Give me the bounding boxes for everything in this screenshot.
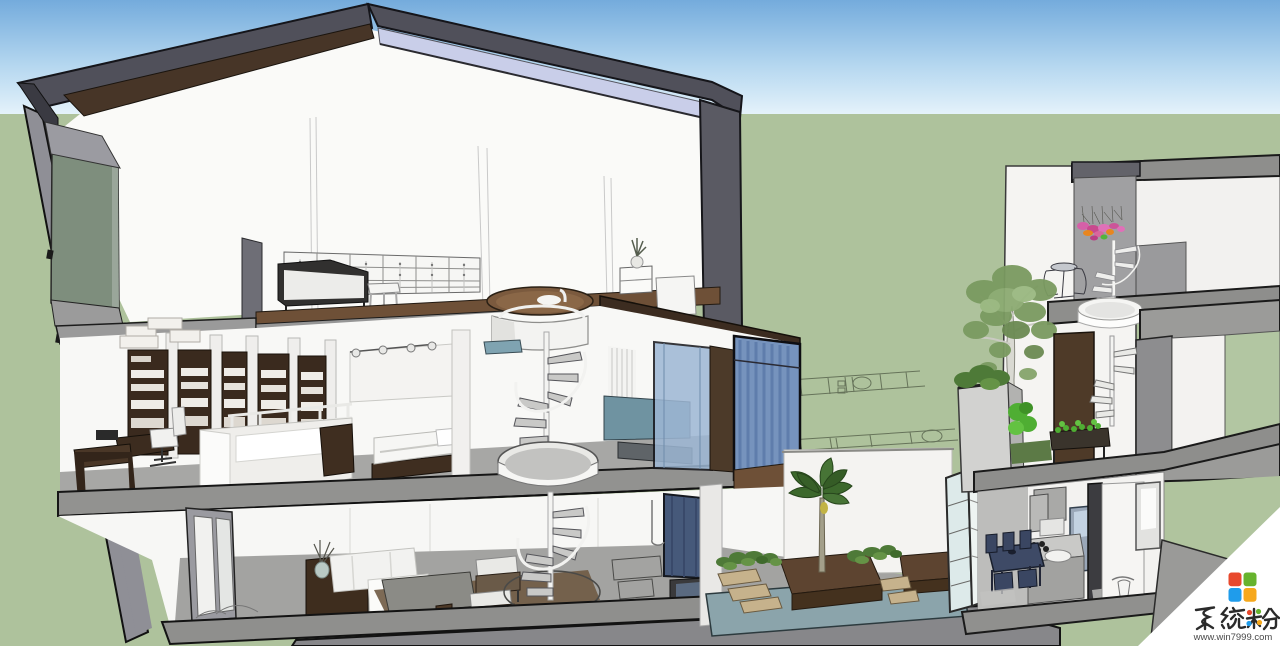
svg-text:www.win7999.com: www.win7999.com [1193,632,1273,643]
